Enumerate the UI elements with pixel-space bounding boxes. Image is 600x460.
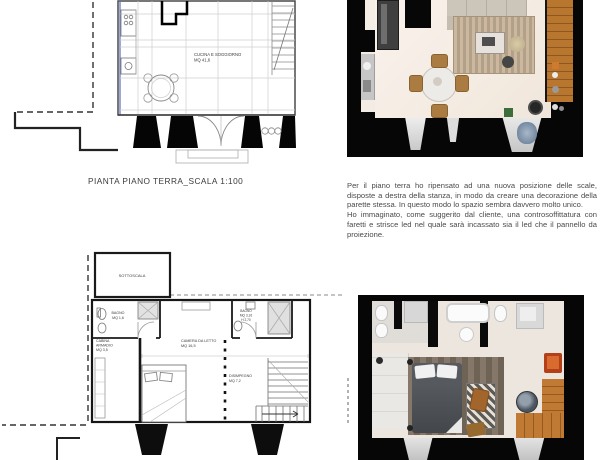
ground-floor-plan: CUCINA E SOGGIORNO MQ 41,6	[0, 0, 345, 195]
entry-door-swing	[198, 116, 244, 146]
room-label-bagno-left-mq: MQ 1,6	[112, 316, 124, 320]
shower-left	[404, 301, 428, 323]
pillow-right	[436, 364, 457, 379]
bidet-left	[375, 323, 388, 338]
chair-south	[431, 104, 448, 118]
nightstand-lamp-top	[407, 359, 413, 365]
nightstand-lamp-bottom	[407, 425, 413, 431]
pillow-left	[414, 364, 435, 379]
boundary-dashed-line	[15, 2, 93, 112]
room-label-bagno-left: BAGNO	[112, 311, 125, 315]
room-label-bagno-right-h: H 2,70	[241, 318, 251, 322]
room-label-camera-mq: MQ 16,5	[181, 344, 196, 348]
shelf-item-orange	[552, 62, 559, 69]
coffee-table-decor	[482, 37, 495, 46]
green-box	[504, 108, 513, 117]
room-label-cabina-mq: MQ 3,5	[96, 348, 108, 352]
door-opening-right	[510, 438, 548, 460]
floor-pouf	[528, 100, 543, 115]
table-decor	[433, 77, 442, 86]
first-floor-plan: SOTTOSCALA BAGNO MQ 1,6 BAGNO MQ 3,16	[0, 250, 350, 460]
stairs-upper-flight	[542, 379, 564, 413]
room-label-camera: CAMERA DA LETTO	[181, 339, 216, 343]
room-label-disimpegno-mq: MQ 7,2	[229, 379, 241, 383]
bath-partition-inner	[394, 301, 402, 329]
pouf-dark	[502, 56, 514, 68]
tall-cabinet-front	[381, 4, 387, 44]
toilet-left	[375, 305, 388, 321]
boundary-dashed-line	[2, 255, 88, 425]
plan-caption: PIANTA PIANO TERRA_SCALA 1:100	[88, 176, 243, 186]
room-label-cabina: CABINA	[96, 339, 110, 343]
shower-right-mat	[520, 307, 536, 321]
wood-stairs	[545, 0, 573, 102]
room-label-cabina-2: ARMADIO	[96, 344, 113, 348]
floor-lamp	[376, 357, 383, 364]
first-floor-render	[358, 295, 584, 460]
orange-chair-seat	[547, 356, 559, 369]
wall-piers	[133, 116, 296, 148]
exterior-steps	[176, 150, 248, 163]
shelf-item-gray	[552, 86, 559, 93]
toilet-right	[494, 305, 507, 322]
stairs-lower-flight	[516, 413, 564, 438]
entry-armchair	[517, 122, 537, 144]
room-label-cucina-mq: MQ 41,6	[194, 58, 211, 63]
door-opening-left	[400, 438, 436, 460]
description-paragraph-2: Ho immaginato, come suggerito dal client…	[347, 210, 597, 239]
room-label-bagno-right: BAGNO	[240, 309, 252, 313]
terrace-wall	[57, 438, 80, 460]
description-text: Per il piano terra ho ripensato ad una n…	[347, 181, 597, 239]
vase-light	[552, 104, 558, 110]
door-opening-mid	[445, 118, 461, 142]
wall-piers	[135, 424, 284, 455]
vase-dark	[559, 106, 564, 111]
bay-window-scallops	[262, 128, 281, 134]
chair-east	[455, 75, 469, 92]
wall-notch	[405, 0, 431, 28]
room-label-disimpegno: DISIMPEGNO	[229, 374, 252, 378]
door-opening-left	[402, 118, 429, 150]
round-armchair	[516, 391, 538, 413]
room-label-bagno-right-mq: MQ 3,16	[240, 314, 252, 318]
portfolio-page: CUCINA E SOGGIORNO MQ 41,6 PIANTA PIANO …	[0, 0, 600, 460]
description-paragraph-1: Per il piano terra ho ripensato ad una n…	[347, 181, 597, 210]
kitchen-sink	[363, 62, 371, 70]
ground-floor-render	[347, 0, 583, 157]
wardrobe	[372, 353, 409, 429]
kitchen-cooktop	[363, 80, 371, 92]
kitchen-counter	[361, 54, 375, 100]
sofa	[447, 0, 527, 17]
pouf-light	[509, 36, 525, 52]
bathtub	[446, 303, 490, 323]
chair-north	[431, 54, 448, 68]
terrace-wall	[15, 112, 118, 150]
room-label-sottoscala: SOTTOSCALA	[119, 273, 146, 278]
bath-partition-left	[428, 301, 438, 347]
chair-west	[409, 75, 423, 92]
render-floor-corner	[365, 0, 375, 30]
bed	[142, 365, 186, 422]
room-label-cucina: CUCINA E SOGGIORNO	[194, 52, 242, 57]
shelf-item-white	[552, 72, 558, 78]
round-sink	[459, 327, 474, 342]
